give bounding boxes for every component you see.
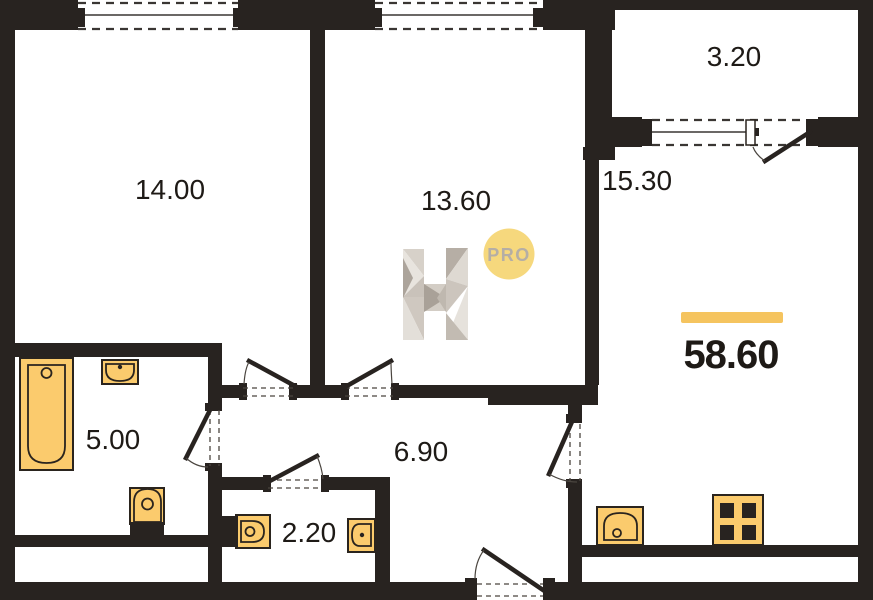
window-top-middle bbox=[375, 3, 543, 29]
area-label-bathroom: 5.00 bbox=[86, 424, 141, 455]
bathroom-sink-icon bbox=[102, 360, 138, 384]
total-area-accent-bar bbox=[681, 312, 783, 323]
logo-pro-text: PRO bbox=[487, 245, 531, 265]
door-bedroom bbox=[243, 361, 295, 396]
bathroom-toilet-icon bbox=[130, 488, 164, 538]
door-kitchen bbox=[549, 424, 580, 482]
door-bathroom bbox=[186, 410, 219, 467]
area-label-room: 13.60 bbox=[421, 185, 491, 216]
area-label-wc: 2.20 bbox=[282, 517, 337, 548]
floor-plan-drawing: PRO 14.00 13.60 15.30 3.20 5.00 6.90 2.2… bbox=[0, 0, 873, 600]
door-room bbox=[345, 361, 393, 396]
logo-pro-badge: PRO bbox=[484, 229, 535, 280]
floor-plan: PRO 14.00 13.60 15.30 3.20 5.00 6.90 2.2… bbox=[0, 0, 873, 600]
wc-sink-icon bbox=[348, 519, 375, 552]
area-label-kitchen-living: 15.30 bbox=[602, 165, 672, 196]
total-area-value: 58.60 bbox=[683, 333, 778, 377]
wc-toilet-icon bbox=[222, 515, 270, 548]
area-label-hallway: 6.90 bbox=[394, 436, 449, 467]
area-label-bedroom: 14.00 bbox=[135, 174, 205, 205]
window-top-left bbox=[78, 3, 238, 29]
area-label-balcony: 3.20 bbox=[707, 41, 762, 72]
logo-h-icon bbox=[403, 248, 468, 340]
total-area: 58.60 bbox=[681, 312, 783, 377]
kitchen-sink-icon bbox=[597, 507, 643, 545]
balcony-window-and-door bbox=[652, 120, 810, 161]
bathtub-icon bbox=[20, 358, 73, 470]
door-wc bbox=[268, 456, 323, 488]
stove-icon bbox=[713, 495, 763, 545]
door-entrance bbox=[475, 550, 543, 596]
